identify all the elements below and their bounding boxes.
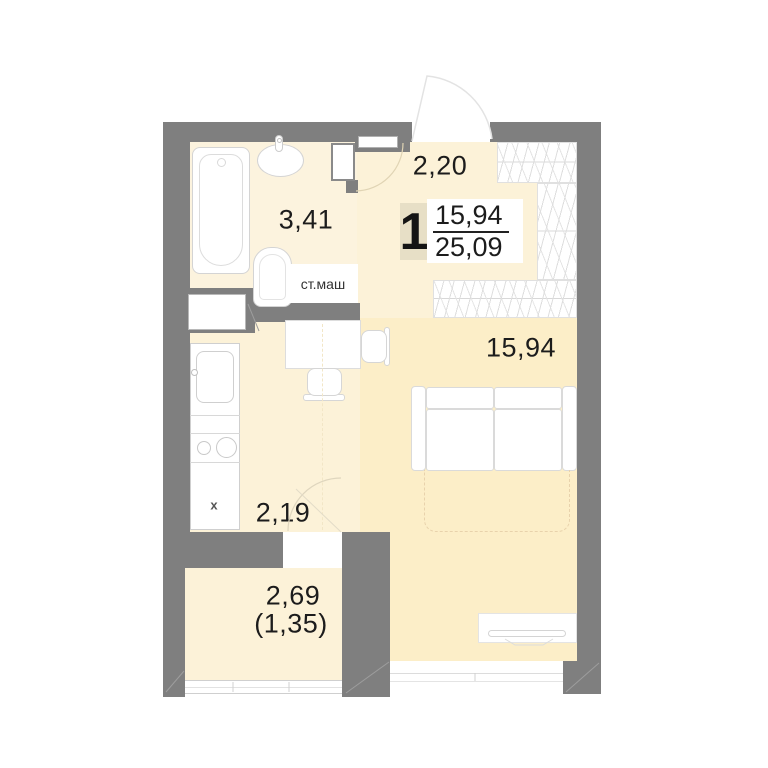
wall-left	[163, 122, 190, 565]
kitchen-area-label: 2,19	[256, 498, 311, 529]
duct-box	[188, 294, 246, 330]
sofa-armrest-left	[411, 386, 426, 471]
bathtub-drain	[217, 158, 226, 167]
kitchen-sink	[196, 351, 234, 403]
zone-boundary-dashed	[322, 324, 323, 530]
floor-plan: ст.маш x 2,20 3,41 15,94 2,19 2,69 (1,35…	[0, 0, 768, 768]
stove-burner-small	[197, 441, 211, 455]
bathroom-door-leaf	[331, 143, 355, 181]
sofa-back-cushion-left	[426, 387, 494, 409]
balcony-area-label: 2,69	[266, 581, 321, 612]
chair-right	[361, 330, 387, 363]
bathroom-area-label: 3,41	[279, 205, 334, 236]
counter-divider-1	[190, 415, 240, 416]
living-room-window	[390, 661, 563, 694]
washing-machine-label: ст.маш	[301, 276, 345, 292]
entrance-door-swing	[412, 76, 492, 141]
sofa-armrest-right	[562, 386, 577, 471]
area-fraction-box: 15,94 25,09	[427, 199, 523, 263]
dining-table	[285, 320, 361, 369]
chair-bottom	[307, 368, 342, 396]
wardrobe-hatch-bottom	[433, 280, 577, 318]
wall-balcony-top	[163, 532, 283, 568]
bathtub-inner	[199, 154, 243, 266]
wall-pier-bottom-right	[563, 661, 601, 694]
wall-balcony-living-divider	[342, 532, 390, 697]
wall-door-stub	[346, 180, 358, 193]
counter-divider-2	[190, 433, 240, 434]
toilet-inner	[259, 254, 286, 300]
fridge-marker: x	[210, 498, 217, 513]
wall-balcony-left	[163, 565, 185, 697]
area-room-value: 15,94	[435, 200, 503, 231]
wardrobe-hatch-right	[537, 183, 577, 280]
stove-burner-large	[216, 437, 237, 458]
balcony-reduced-area-label: (1,35)	[254, 609, 328, 640]
sofa-back-cushion-right	[494, 387, 562, 409]
counter-divider-3	[190, 462, 240, 463]
area-total-value: 25,09	[435, 232, 503, 263]
living-window-line-1	[390, 673, 563, 674]
sofa-seat-right	[494, 409, 562, 471]
wall-niche	[358, 136, 398, 148]
window-sill-box	[478, 613, 577, 643]
living-room-area-label: 15,94	[486, 333, 556, 364]
bathroom-faucet-dot	[277, 138, 282, 143]
apartment-number-badge: 1	[400, 203, 428, 260]
hall-area-label: 2,20	[413, 151, 468, 182]
sofa-bed-extension-dashed	[424, 470, 570, 532]
living-window-line-2	[390, 681, 563, 682]
kitchen-faucet	[191, 369, 198, 376]
wall-right	[577, 122, 601, 661]
balcony-glazing-line	[185, 687, 342, 688]
sofa-seat-left	[426, 409, 494, 471]
window-sill-pill	[488, 630, 566, 637]
wardrobe-hatch-top	[497, 142, 577, 183]
